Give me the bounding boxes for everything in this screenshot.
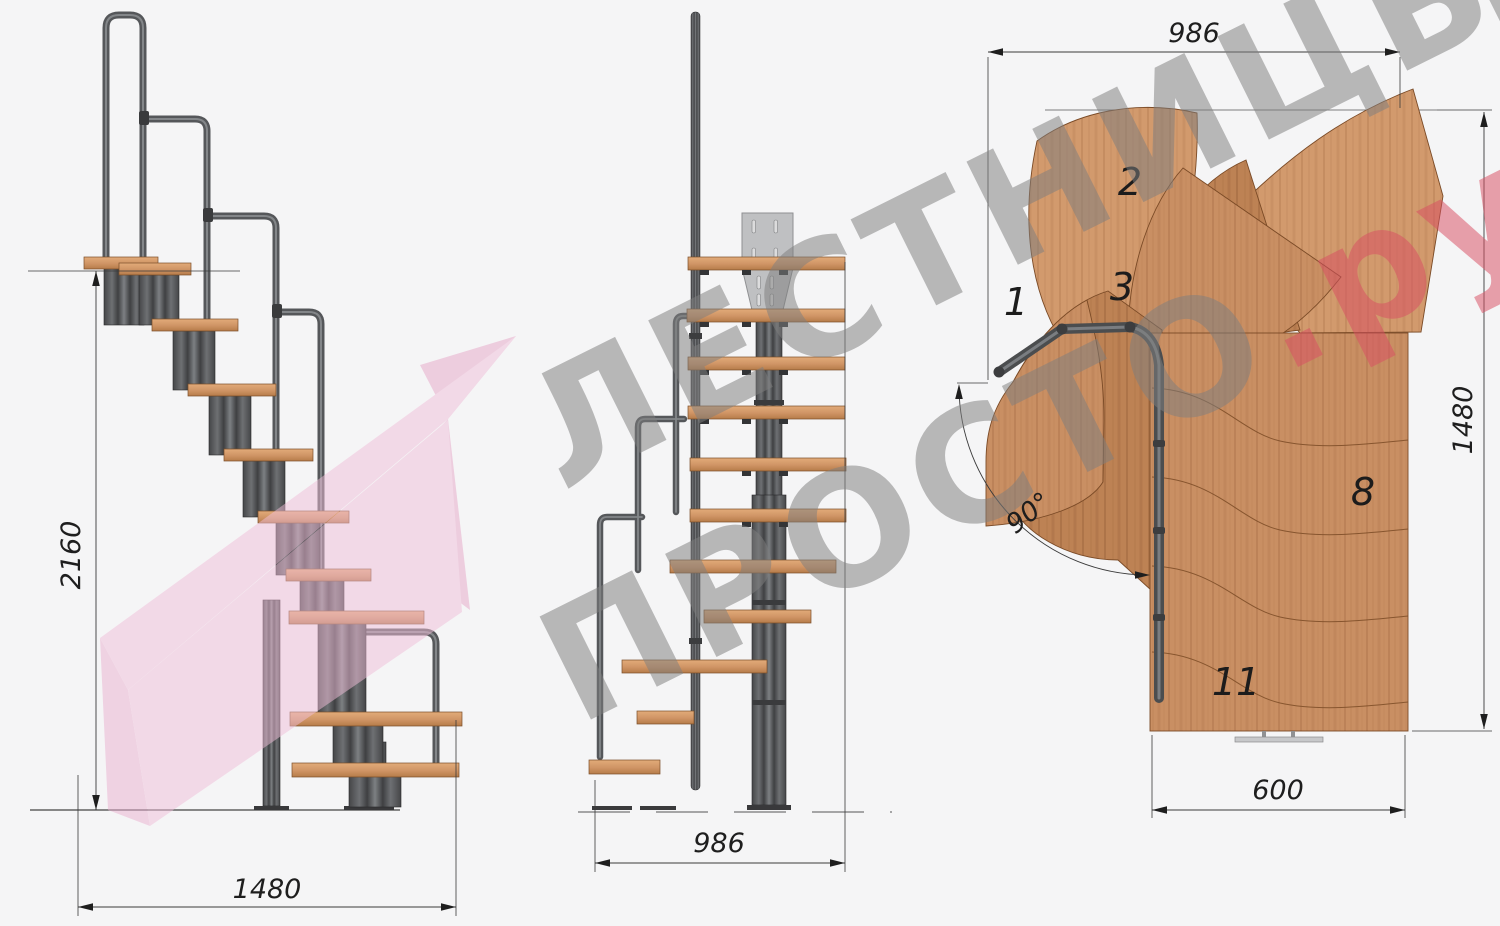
plan-base-plate [1235,737,1323,742]
dim-plan-exit-width: 600 [1252,775,1304,806]
front-base-flange [640,806,676,810]
front-column-base [747,805,791,810]
dim-front-width: 986 [693,828,745,859]
ribbon-watermark [100,336,516,826]
dim-side-height: 2160 [56,521,87,590]
dim-side-width: 1480 [233,874,302,905]
column-joint [752,700,786,705]
drawing-svg: 2160 1480 [0,0,1500,926]
step-number-11: 11 [1212,660,1260,704]
front-base-flange [592,806,632,810]
dim-plan-depth: 1480 [1448,386,1479,455]
side-column-base [254,806,289,810]
dim-plan-exit-width-group: 600 [1152,735,1405,818]
staircase-technical-drawing: 2160 1480 [0,0,1500,926]
step-number-8: 8 [1351,470,1375,514]
